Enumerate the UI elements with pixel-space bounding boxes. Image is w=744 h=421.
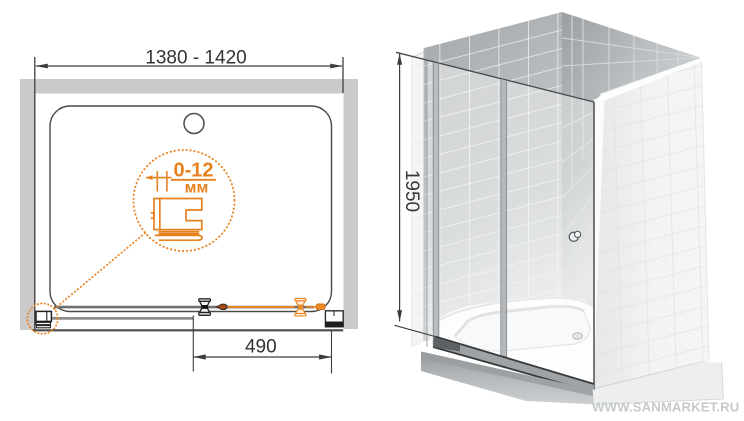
svg-text:1950: 1950 [401,170,422,212]
svg-text:490: 490 [245,336,277,357]
svg-text:1380 - 1420: 1380 - 1420 [145,48,246,69]
svg-text:мм: мм [185,180,209,197]
svg-text:0-12: 0-12 [173,160,213,182]
svg-text:WWW.SANMARKET.RU: WWW.SANMARKET.RU [592,400,739,415]
